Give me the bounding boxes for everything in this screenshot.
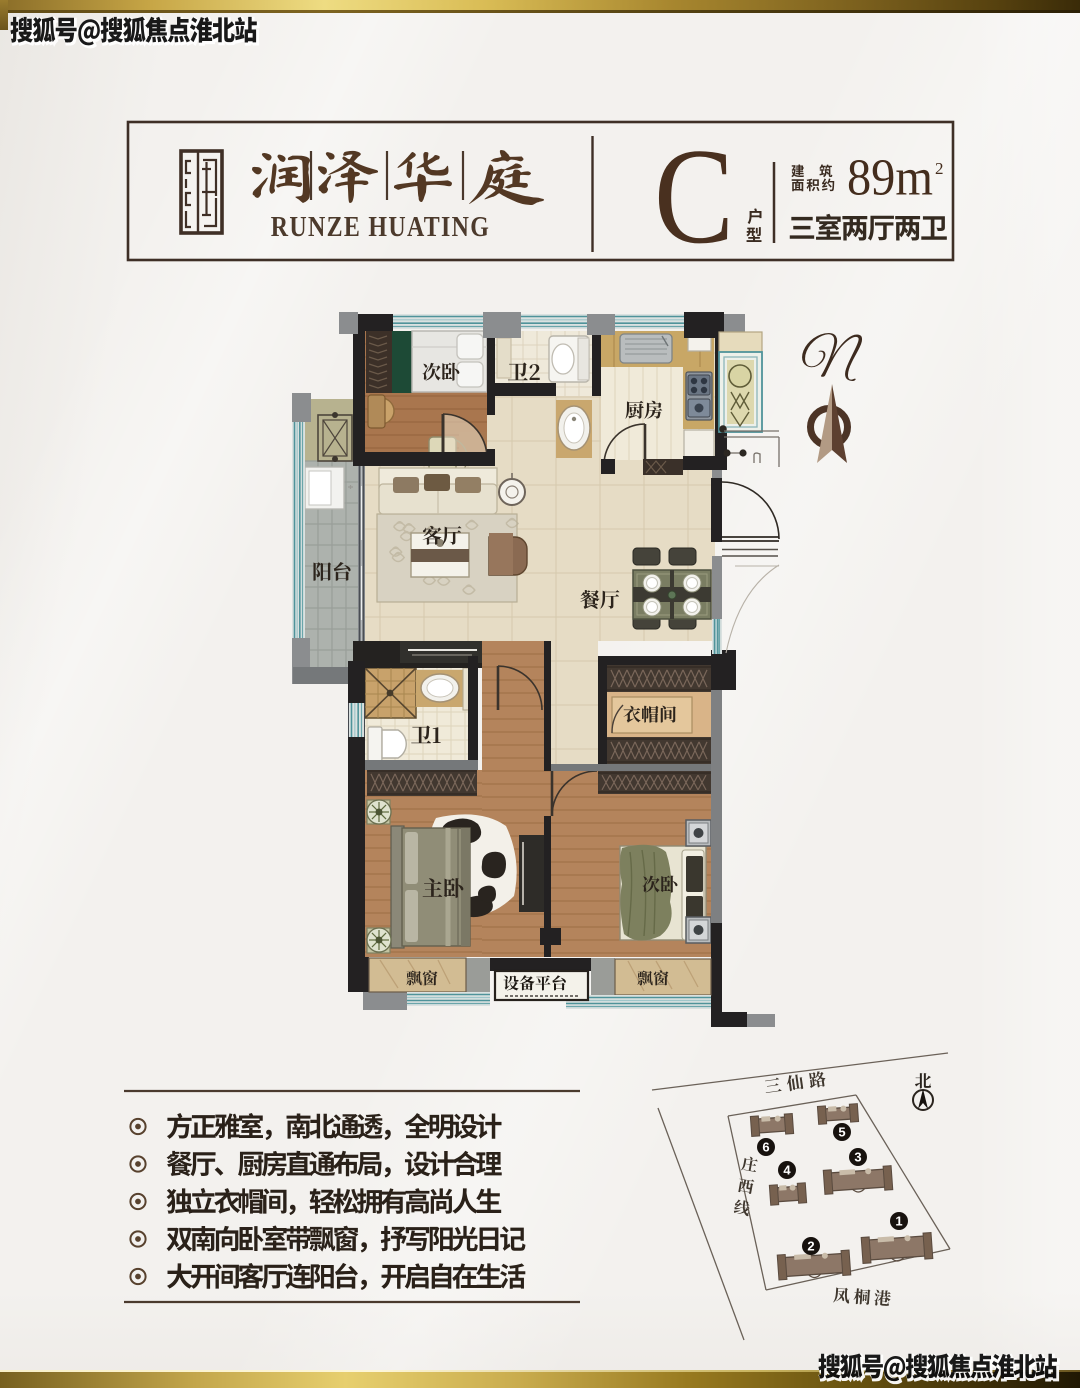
- svg-text:2: 2: [935, 159, 944, 178]
- svg-text:89m: 89m: [847, 150, 933, 207]
- svg-text:3: 3: [854, 1150, 861, 1165]
- svg-text:2: 2: [807, 1239, 814, 1254]
- svg-text:4: 4: [783, 1163, 791, 1178]
- svg-text:C: C: [654, 120, 734, 272]
- svg-text:5: 5: [838, 1125, 845, 1140]
- svg-text:6: 6: [762, 1140, 769, 1155]
- svg-text:1: 1: [895, 1214, 902, 1229]
- svg-text:RUNZE HUATING: RUNZE HUATING: [271, 210, 490, 243]
